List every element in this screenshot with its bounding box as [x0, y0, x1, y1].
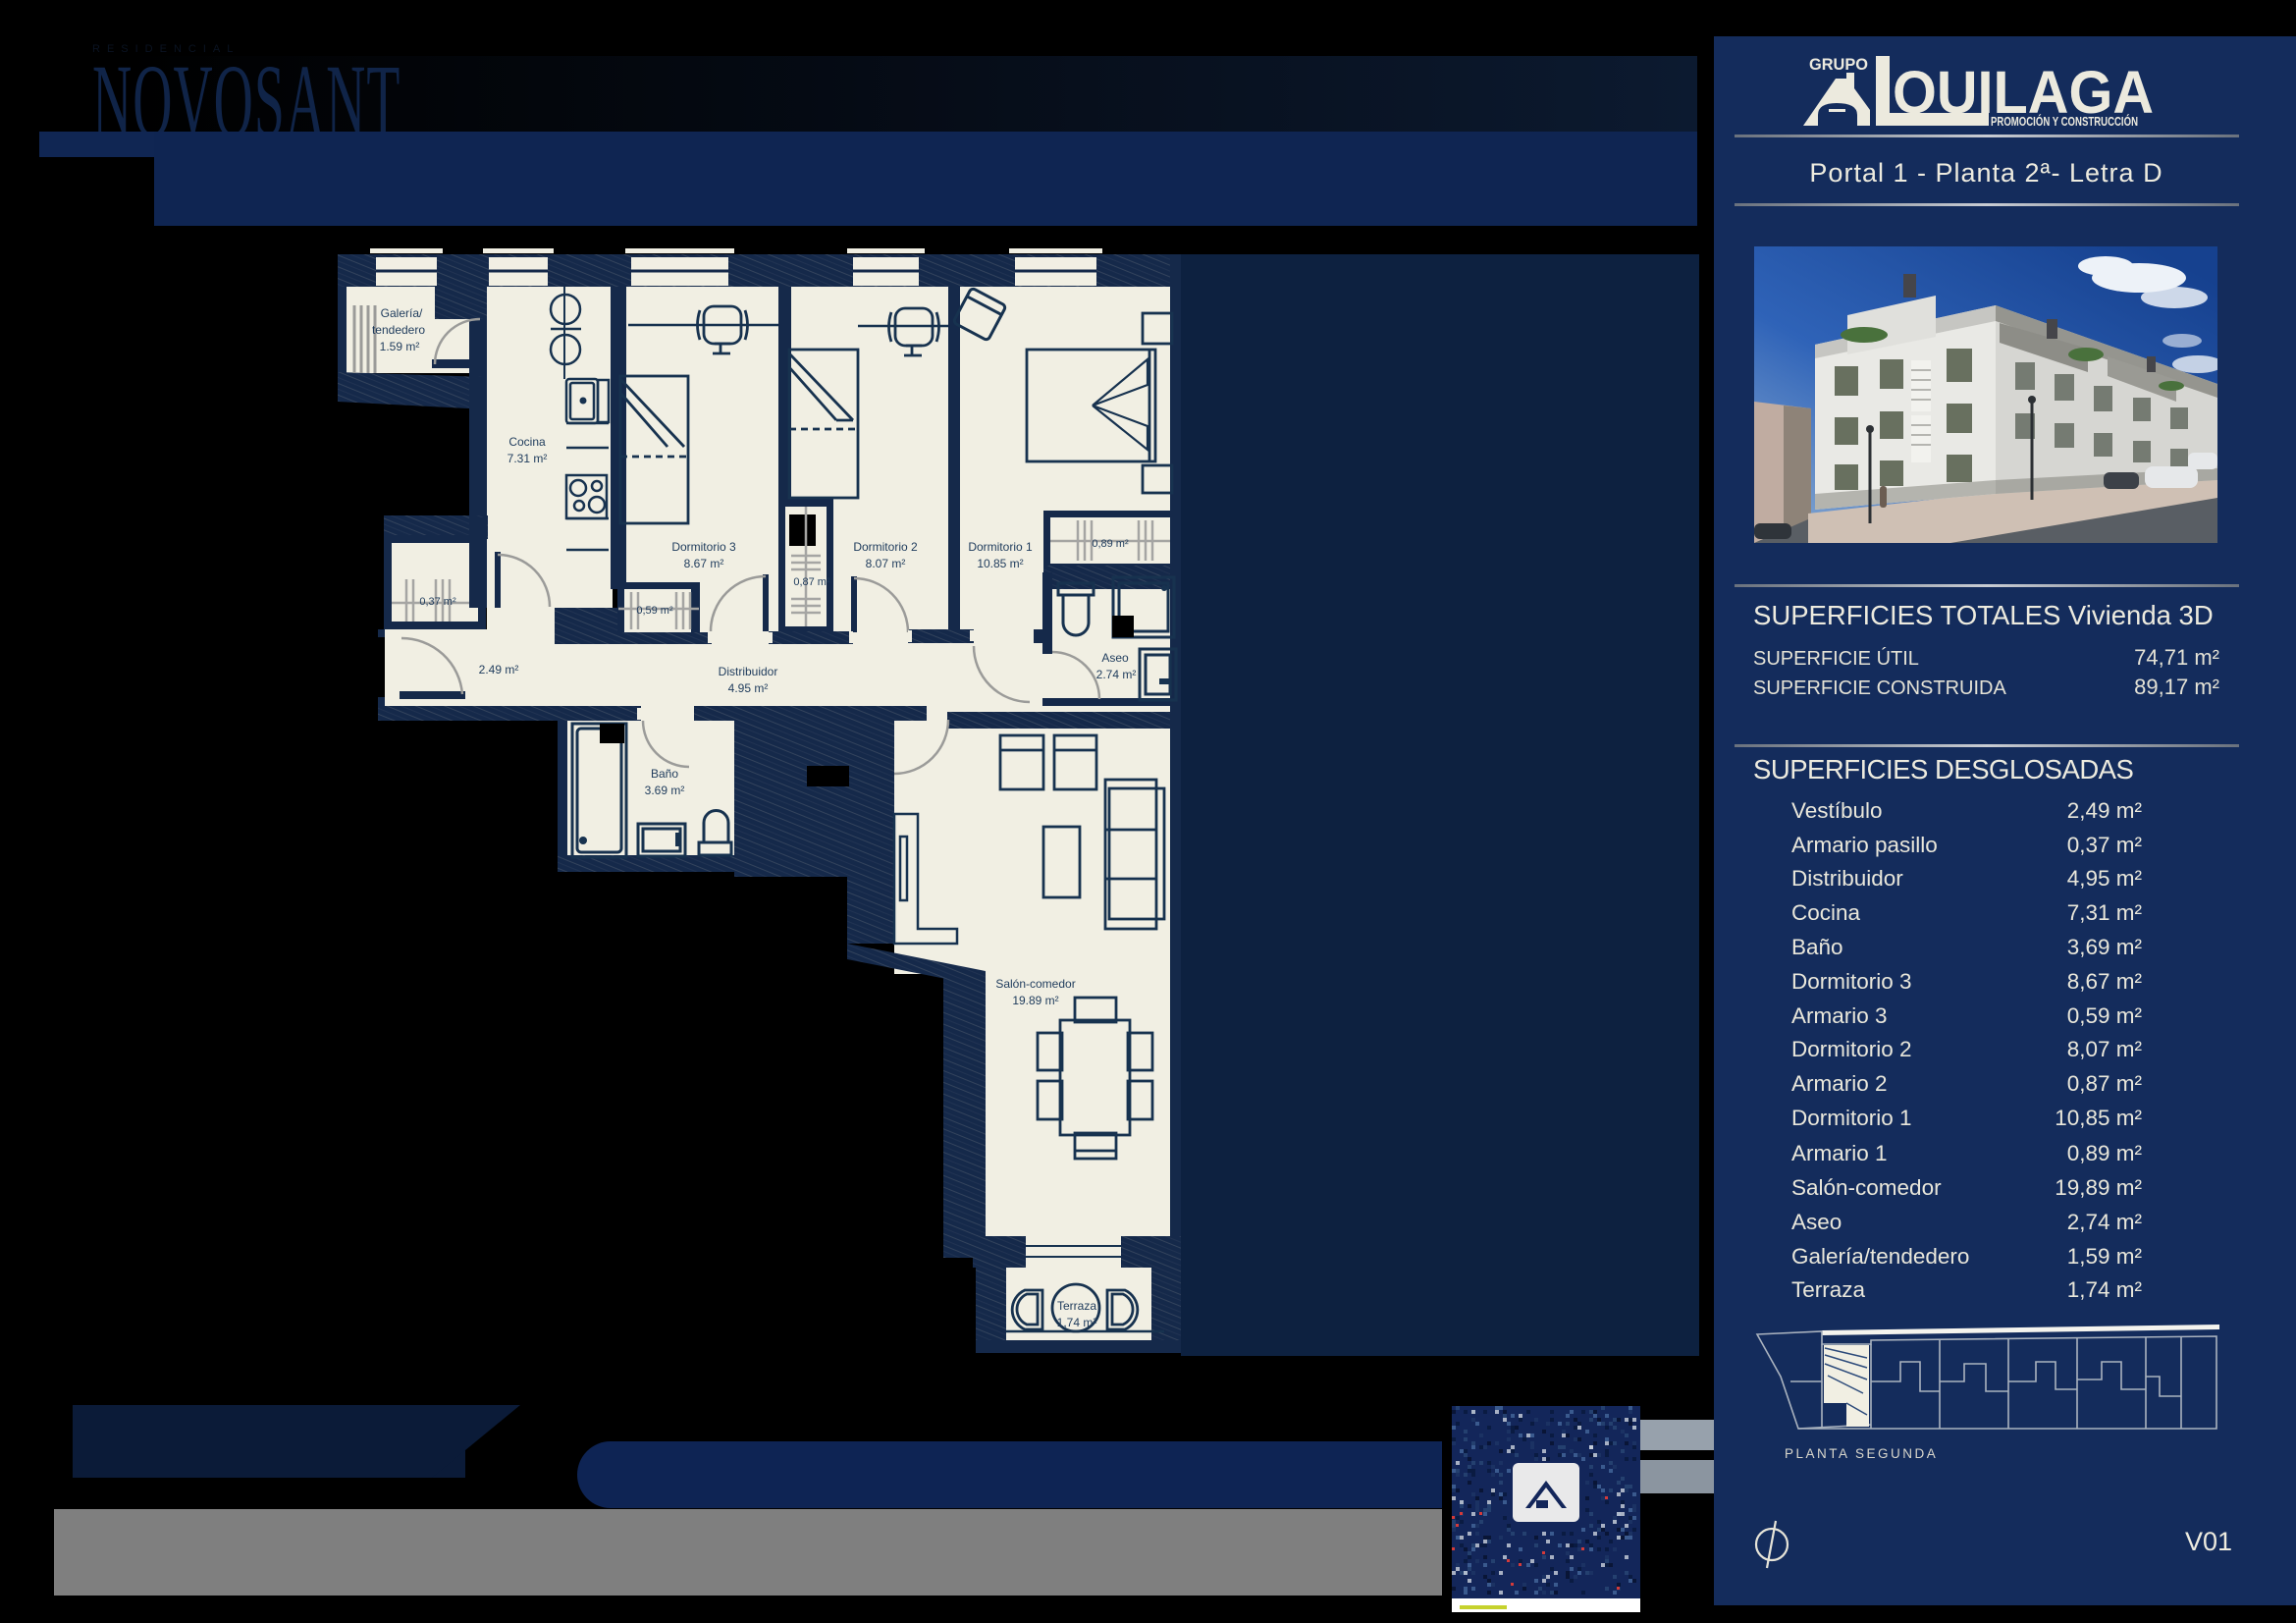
- svg-text:8.67 m²: 8.67 m²: [684, 557, 724, 570]
- svg-text:0,89 m²: 0,89 m²: [1092, 538, 1129, 550]
- svg-text:1,74 m²: 1,74 m²: [1057, 1316, 1097, 1329]
- svg-text:Terraza: Terraza: [1057, 1299, 1096, 1313]
- svg-text:Salón-comedor: Salón-comedor: [995, 977, 1075, 991]
- svg-text:3.69 m²: 3.69 m²: [645, 784, 685, 797]
- svg-text:Baño: Baño: [651, 767, 678, 781]
- svg-text:Aseo: Aseo: [1101, 651, 1129, 665]
- svg-text:4.95 m²: 4.95 m²: [728, 681, 769, 695]
- svg-text:Cocina: Cocina: [508, 435, 546, 449]
- svg-text:2.74 m²: 2.74 m²: [1096, 668, 1137, 681]
- svg-text:1.59 m²: 1.59 m²: [380, 340, 420, 353]
- svg-text:PROMOCIÓN Y CONSTRUCCIÓN: PROMOCIÓN Y CONSTRUCCIÓN: [1991, 114, 2138, 129]
- svg-text:10.85 m²: 10.85 m²: [977, 557, 1023, 570]
- svg-text:PLANTA SEGUNDA: PLANTA SEGUNDA: [1785, 1446, 1938, 1461]
- svg-text:GRUPO: GRUPO: [1809, 56, 1868, 74]
- svg-text:0,87 m²: 0,87 m²: [793, 576, 830, 588]
- svg-text:Dormitorio 2: Dormitorio 2: [853, 540, 918, 554]
- svg-text:Galería/: Galería/: [381, 306, 423, 320]
- svg-text:0,59 m²: 0,59 m²: [636, 605, 673, 617]
- svg-text:19.89 m²: 19.89 m²: [1012, 994, 1058, 1007]
- svg-text:Dormitorio 1: Dormitorio 1: [968, 540, 1033, 554]
- svg-text:8.07 m²: 8.07 m²: [866, 557, 906, 570]
- svg-text:Dormitorio 3: Dormitorio 3: [671, 540, 736, 554]
- svg-text:Distribuidor: Distribuidor: [719, 665, 778, 678]
- svg-text:2.49 m²: 2.49 m²: [479, 663, 519, 676]
- svg-text:tendedero: tendedero: [372, 323, 425, 337]
- svg-text:0,37 m²: 0,37 m²: [419, 596, 456, 608]
- svg-text:7.31 m²: 7.31 m²: [507, 452, 548, 465]
